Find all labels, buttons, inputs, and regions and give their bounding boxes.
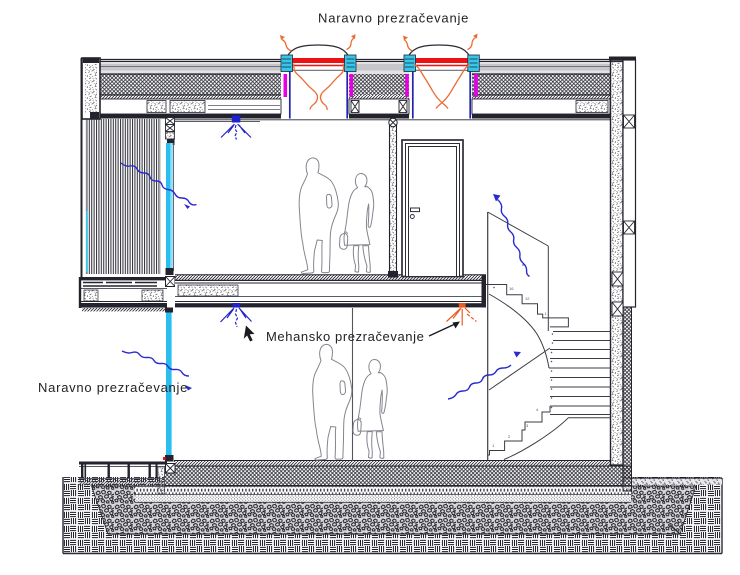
svg-text:1: 1 [545,311,548,316]
svg-text:2: 2 [508,434,511,439]
svg-text:Mehansko prezračevanje: Mehansko prezračevanje [266,329,424,344]
svg-text:3: 3 [526,423,529,428]
svg-text:1: 1 [492,443,495,448]
svg-text:Naravno prezračevanje: Naravno prezračevanje [38,380,188,395]
svg-text:16: 16 [509,286,514,291]
svg-text:4: 4 [536,407,539,412]
svg-text:Naravno prezračevanje: Naravno prezračevanje [318,11,469,26]
svg-text:12: 12 [525,296,530,301]
